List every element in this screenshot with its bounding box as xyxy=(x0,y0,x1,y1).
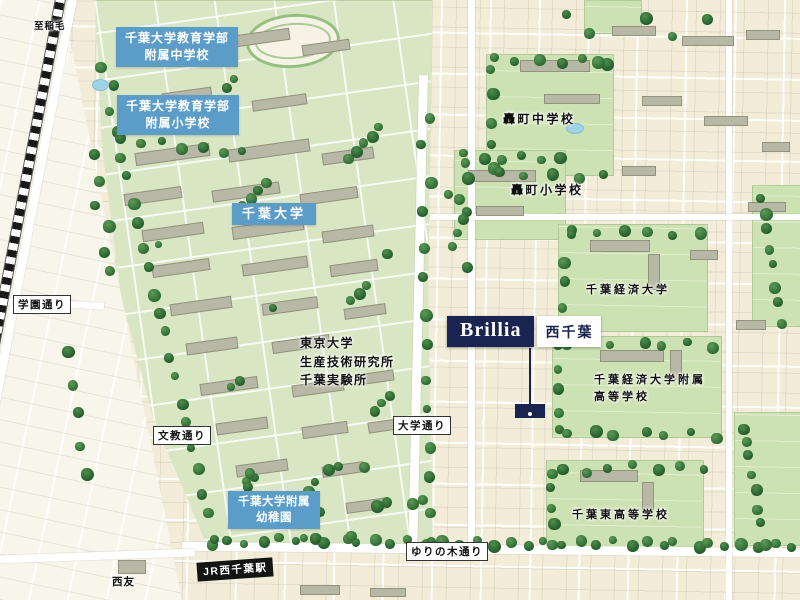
tree-icon xyxy=(683,338,691,346)
todoroki-es-label: 轟町小学校 xyxy=(511,181,584,198)
tree-icon xyxy=(155,241,162,248)
tree-icon xyxy=(548,518,560,530)
tree-icon xyxy=(444,190,453,199)
bunkyo-dori-label: 文教通り xyxy=(153,426,211,445)
todai-line2: 生産技術研究所 xyxy=(300,353,395,372)
tree-icon xyxy=(89,149,100,160)
tree-icon xyxy=(486,118,497,129)
tree-icon xyxy=(590,425,603,438)
tree-icon xyxy=(274,533,284,543)
tree-icon xyxy=(370,406,381,417)
building xyxy=(321,224,374,243)
tree-icon xyxy=(418,495,428,505)
tree-icon xyxy=(382,249,393,260)
tree-icon xyxy=(187,444,195,452)
tree-icon xyxy=(771,539,781,549)
tree-icon xyxy=(95,62,107,74)
tree-icon xyxy=(425,113,436,124)
tree-icon xyxy=(576,535,588,547)
tree-icon xyxy=(640,12,653,25)
edu-elementary-line1: 千葉大学教育学部 xyxy=(119,98,237,115)
tree-icon xyxy=(557,541,565,549)
tree-icon xyxy=(418,272,427,281)
tree-icon xyxy=(382,497,392,507)
tree-icon xyxy=(62,346,74,358)
kindergarten-line1: 千葉大学附属 xyxy=(230,494,318,510)
building xyxy=(622,166,656,176)
tree-icon xyxy=(193,463,205,475)
tree-icon xyxy=(519,172,528,181)
building xyxy=(682,36,734,46)
higashi-hs-label: 千葉東高等学校 xyxy=(572,506,670,522)
tree-icon xyxy=(702,14,713,25)
tree-icon xyxy=(210,535,219,544)
tree-icon xyxy=(761,223,772,234)
tree-icon xyxy=(423,405,431,413)
building xyxy=(690,250,718,260)
tree-icon xyxy=(334,462,343,471)
tree-icon xyxy=(659,431,667,439)
tree-icon xyxy=(128,198,140,210)
tree-icon xyxy=(424,471,436,483)
building xyxy=(343,303,386,320)
tree-icon xyxy=(707,342,719,354)
tree-icon xyxy=(115,153,126,164)
tree-icon xyxy=(751,484,763,496)
keizai-hs-label: 千葉経済大学附属 高等学校 xyxy=(594,372,706,405)
tree-icon xyxy=(695,227,707,239)
tree-icon xyxy=(90,201,99,210)
todoroki-jhs-label: 轟町中学校 xyxy=(503,110,576,127)
tree-icon xyxy=(154,308,165,319)
tree-icon xyxy=(607,430,618,441)
tree-icon xyxy=(171,372,179,380)
gakuen-dori-label: 学園通り xyxy=(13,295,71,314)
tree-icon xyxy=(177,399,189,411)
tree-icon xyxy=(73,407,84,418)
tree-icon xyxy=(562,10,571,19)
building xyxy=(612,26,656,36)
edu-junior-high-line2: 附属中学校 xyxy=(118,47,236,64)
tree-icon xyxy=(743,450,753,460)
decoration-layer xyxy=(0,0,800,600)
todai-line1: 東京大学 xyxy=(300,334,395,353)
tree-icon xyxy=(269,304,277,312)
brillia-area-name: 西千葉 xyxy=(537,316,601,347)
tree-icon xyxy=(558,257,570,269)
direction-to-inage-label: 至稲毛 xyxy=(34,18,66,32)
tree-icon xyxy=(148,289,161,302)
tree-icon xyxy=(385,391,395,401)
tree-icon xyxy=(657,341,667,351)
tree-icon xyxy=(425,177,438,190)
tree-icon xyxy=(687,428,695,436)
tree-icon xyxy=(546,483,555,492)
tree-icon xyxy=(603,464,612,473)
tree-icon xyxy=(547,469,558,480)
tree-icon xyxy=(311,478,319,486)
tree-icon xyxy=(462,172,475,185)
tree-icon xyxy=(506,537,517,548)
tree-icon xyxy=(773,297,783,307)
tree-icon xyxy=(735,538,748,551)
keizai-hs-line2: 高等学校 xyxy=(594,389,706,406)
building xyxy=(118,560,146,574)
brillia-pointer-line xyxy=(529,348,531,405)
tree-icon xyxy=(720,542,729,551)
yurinoki-dori-label: ゆりの木通り xyxy=(406,542,488,561)
tree-icon xyxy=(497,155,507,165)
tree-icon xyxy=(81,468,94,481)
tree-icon xyxy=(377,399,385,407)
tree-icon xyxy=(547,504,556,513)
tree-icon xyxy=(425,508,435,518)
tree-icon xyxy=(711,433,723,445)
tree-icon xyxy=(68,380,79,391)
edu-elementary-label: 千葉大学教育学部 附属小学校 xyxy=(117,95,239,135)
building xyxy=(329,259,378,278)
building xyxy=(590,240,650,252)
tree-icon xyxy=(261,178,271,188)
tree-icon xyxy=(787,543,796,552)
building xyxy=(141,222,204,243)
tree-icon xyxy=(557,58,568,69)
building xyxy=(736,320,766,330)
tree-icon xyxy=(558,303,567,312)
tree-icon xyxy=(105,266,115,276)
tree-icon xyxy=(227,383,234,390)
tree-icon xyxy=(222,83,232,93)
tree-icon xyxy=(627,540,639,552)
tree-icon xyxy=(238,147,247,156)
tree-icon xyxy=(367,131,379,143)
tree-icon xyxy=(490,53,499,62)
tree-icon xyxy=(494,167,504,177)
tree-icon xyxy=(419,243,430,254)
daigaku-dori-label: 大学通り xyxy=(393,416,451,435)
edu-elementary-line2: 附属小学校 xyxy=(119,115,237,132)
tree-icon xyxy=(448,242,457,251)
tree-icon xyxy=(300,534,308,542)
tree-icon xyxy=(459,149,467,157)
todai-institute-label: 東京大学 生産技術研究所 千葉実験所 xyxy=(300,334,395,390)
chiba-university-label: 千葉大学 xyxy=(232,203,316,225)
edu-junior-high-line1: 千葉大学教育学部 xyxy=(118,30,236,47)
tree-icon xyxy=(557,464,569,476)
brillia-site-marker-dot xyxy=(528,412,532,416)
building xyxy=(215,416,268,435)
tree-icon xyxy=(524,541,534,551)
tree-icon xyxy=(421,376,431,386)
tree-icon xyxy=(346,296,355,305)
tree-icon xyxy=(606,341,614,349)
tree-icon xyxy=(138,243,149,254)
tree-icon xyxy=(547,168,559,180)
tree-icon xyxy=(642,536,652,546)
tree-icon xyxy=(517,151,526,160)
tree-icon xyxy=(642,427,652,437)
tree-icon xyxy=(487,88,499,100)
tree-icon xyxy=(461,158,470,167)
tree-icon xyxy=(599,170,608,179)
tree-icon xyxy=(642,227,652,237)
tree-icon xyxy=(105,107,114,116)
building xyxy=(241,255,308,276)
tree-icon xyxy=(554,152,566,164)
tree-icon xyxy=(752,505,763,516)
building xyxy=(252,93,308,112)
tree-icon xyxy=(584,28,595,39)
tree-icon xyxy=(769,282,781,294)
kindergarten-label: 千葉大学附属 幼稚園 xyxy=(228,491,320,529)
edu-junior-high-label: 千葉大学教育学部 附属中学校 xyxy=(116,27,238,67)
tree-icon xyxy=(756,518,765,527)
tree-icon xyxy=(675,461,685,471)
tree-icon xyxy=(458,214,469,225)
tree-icon xyxy=(417,206,428,217)
tree-icon xyxy=(547,540,558,551)
tree-icon xyxy=(235,376,245,386)
tree-icon xyxy=(420,309,433,322)
tree-icon xyxy=(668,32,677,41)
tree-icon xyxy=(760,539,772,551)
building xyxy=(370,588,406,597)
tree-icon xyxy=(222,536,232,546)
building xyxy=(476,206,524,216)
tree-icon xyxy=(259,536,271,548)
tree-icon xyxy=(197,489,207,499)
tree-icon xyxy=(422,339,433,350)
tree-icon xyxy=(742,437,752,447)
tree-icon xyxy=(582,468,592,478)
tree-icon xyxy=(454,194,465,205)
tree-icon xyxy=(553,383,565,395)
building xyxy=(600,350,664,362)
tree-icon xyxy=(562,429,572,439)
tree-icon xyxy=(453,229,461,237)
tree-icon xyxy=(560,276,571,287)
tree-icon xyxy=(370,534,382,546)
kindergarten-line2: 幼稚園 xyxy=(230,510,318,526)
todai-line3: 千葉実験所 xyxy=(300,371,395,390)
tree-icon xyxy=(109,80,119,90)
tree-icon xyxy=(359,462,370,473)
tree-icon xyxy=(136,139,146,149)
tree-icon xyxy=(765,245,775,255)
tree-icon xyxy=(554,408,564,418)
tree-icon xyxy=(567,230,576,239)
area-map: 至稲毛 千葉大学教育学部 附属中学校 千葉大学教育学部 附属小学校 千葉大学 学… xyxy=(0,0,800,600)
tree-icon xyxy=(488,540,501,553)
tree-icon xyxy=(700,465,709,474)
tree-icon xyxy=(230,75,238,83)
seiyu-store-label: 西友 xyxy=(112,574,135,589)
tree-icon xyxy=(702,538,713,549)
tree-icon xyxy=(385,539,396,550)
tree-icon xyxy=(343,154,353,164)
keizai-hs-line1: 千葉経済大学附属 xyxy=(594,372,706,389)
tree-icon xyxy=(158,137,166,145)
tree-icon xyxy=(486,65,495,74)
tree-icon xyxy=(592,56,605,69)
building xyxy=(300,585,340,595)
tree-icon xyxy=(94,176,105,187)
tree-icon xyxy=(354,288,366,300)
tree-icon xyxy=(161,326,171,336)
tree-icon xyxy=(769,260,777,268)
tree-icon xyxy=(203,508,213,518)
building xyxy=(746,30,780,40)
tree-icon xyxy=(591,540,601,550)
tree-icon xyxy=(668,537,677,546)
tree-icon xyxy=(462,262,473,273)
building xyxy=(544,94,600,104)
tree-icon xyxy=(537,156,546,165)
tree-icon xyxy=(240,540,248,548)
tree-icon xyxy=(416,140,425,149)
building xyxy=(762,142,790,152)
brillia-logo: Brillia xyxy=(447,316,534,347)
tree-icon xyxy=(122,171,131,180)
tree-icon xyxy=(777,319,787,329)
tree-icon xyxy=(144,262,153,271)
building xyxy=(642,96,682,106)
tree-icon xyxy=(103,220,116,233)
tree-icon xyxy=(668,231,677,240)
tree-icon xyxy=(132,217,144,229)
tree-icon xyxy=(628,460,637,469)
tree-icon xyxy=(75,442,84,451)
tree-icon xyxy=(425,442,437,454)
tree-icon xyxy=(487,140,496,149)
tree-icon xyxy=(374,123,382,131)
tree-icon xyxy=(593,229,602,238)
tree-icon xyxy=(554,365,562,373)
tree-icon xyxy=(346,531,357,542)
building xyxy=(301,421,348,439)
building xyxy=(235,458,288,477)
building xyxy=(151,258,210,278)
tree-icon xyxy=(738,424,750,436)
tree-icon xyxy=(609,536,618,545)
tree-icon xyxy=(653,464,665,476)
brillia-sign: Brillia 西千葉 xyxy=(447,316,601,347)
keizai-univ-label: 千葉経済大学 xyxy=(586,281,670,297)
building xyxy=(301,39,350,57)
tree-icon xyxy=(619,225,631,237)
tree-icon xyxy=(99,247,110,258)
tree-icon xyxy=(510,57,519,66)
tree-icon xyxy=(164,353,174,363)
building xyxy=(169,296,232,317)
tree-icon xyxy=(640,337,651,348)
tree-icon xyxy=(747,471,756,480)
building xyxy=(704,116,748,126)
building xyxy=(185,336,238,355)
tree-icon xyxy=(760,208,773,221)
